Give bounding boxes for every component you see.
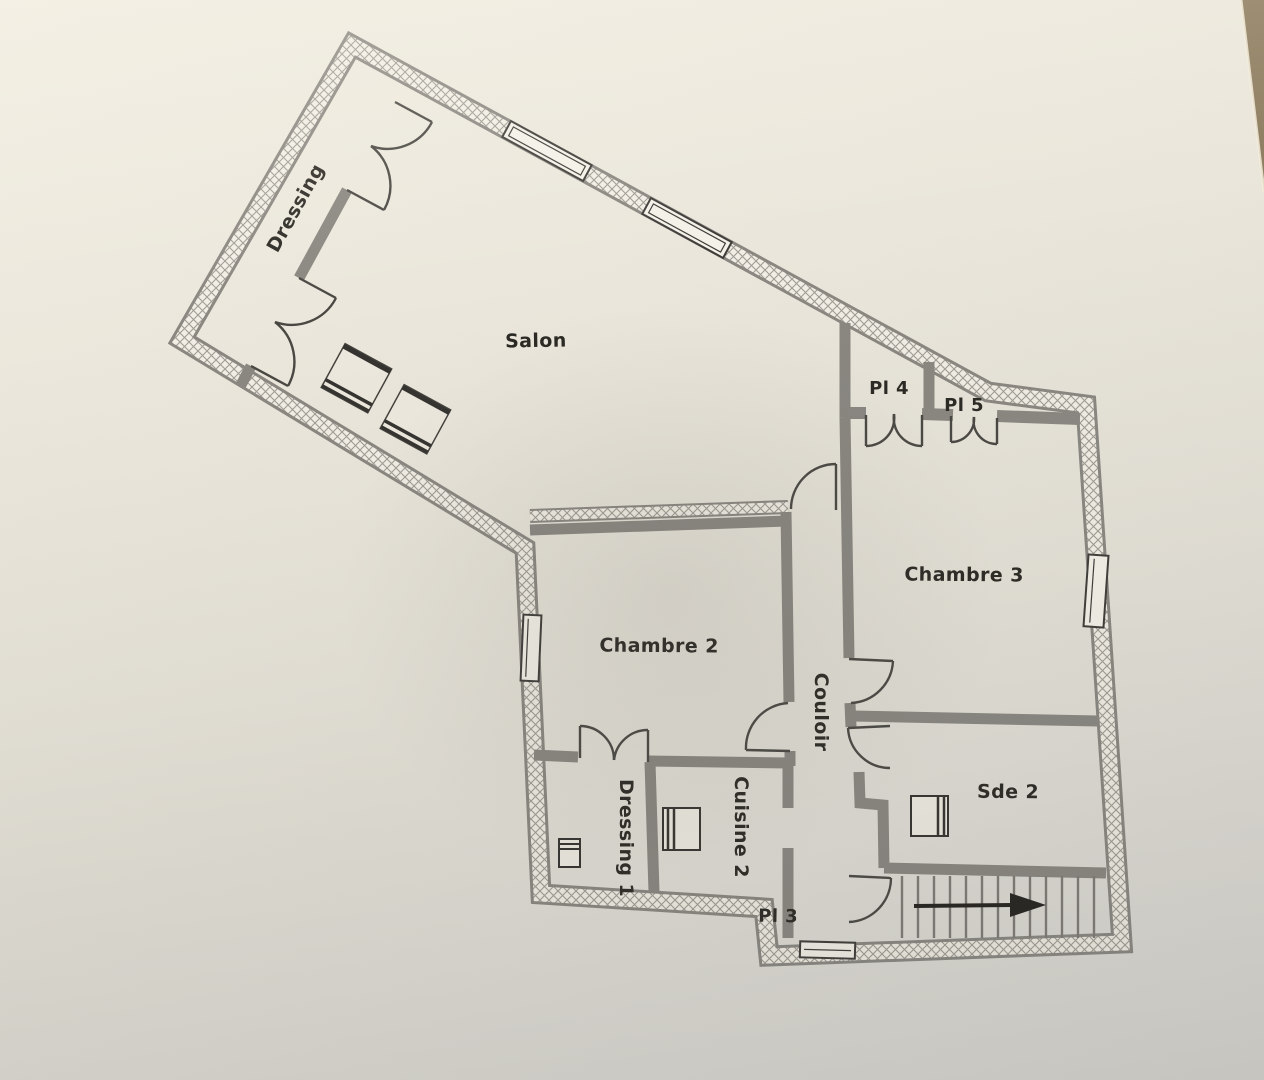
door-pl5 [951,416,997,444]
window-salon-2 [642,198,731,258]
window-salon-1 [502,121,591,181]
staircase [902,876,1094,938]
floor-plan-drawing: Dressing Salon Pl 4 Pl 5 Chambre 3 Chamb… [0,0,1264,1080]
salon-furniture-1 [321,344,391,413]
room-label-pl5: Pl 5 [944,395,984,416]
cuisine-appliance-icon [663,808,700,850]
door-dressing1 [580,726,648,762]
door-salon-couloir [791,464,836,510]
door-pl4 [866,414,922,446]
salon-furniture-2 [380,385,450,454]
door-chambre3 [849,659,893,703]
sde2-basin-icon [911,796,948,836]
room-label-pl3: Pl 3 [758,906,798,928]
window-stair-hall [800,941,855,958]
room-label-salon: Salon [505,329,567,352]
room-label-dressing1: Dressing 1 [615,779,637,897]
room-label-couloir: Couloir [810,673,832,752]
room-label-cuisine2: Cuisine 2 [730,776,752,878]
room-label-chambre2: Chambre 2 [599,634,719,657]
room-label-pl4: Pl 4 [869,378,909,399]
dressing1-fixture-icon [559,839,580,867]
photo-of-floor-plan: Dressing Salon Pl 4 Pl 5 Chambre 3 Chamb… [0,0,1264,1080]
door-stairs [849,876,891,922]
window-chambre2 [521,615,542,682]
door-sde2 [848,726,890,768]
door-chambre2 [746,703,790,751]
windows [502,121,1108,959]
room-label-chambre3: Chambre 3 [904,563,1024,586]
table-surface-corner [1241,0,1264,192]
window-chambre3 [1084,554,1109,627]
door-dressing-bottom [251,278,336,386]
door-dressing-top [347,102,432,210]
room-label-sde2: Sde 2 [977,781,1039,804]
